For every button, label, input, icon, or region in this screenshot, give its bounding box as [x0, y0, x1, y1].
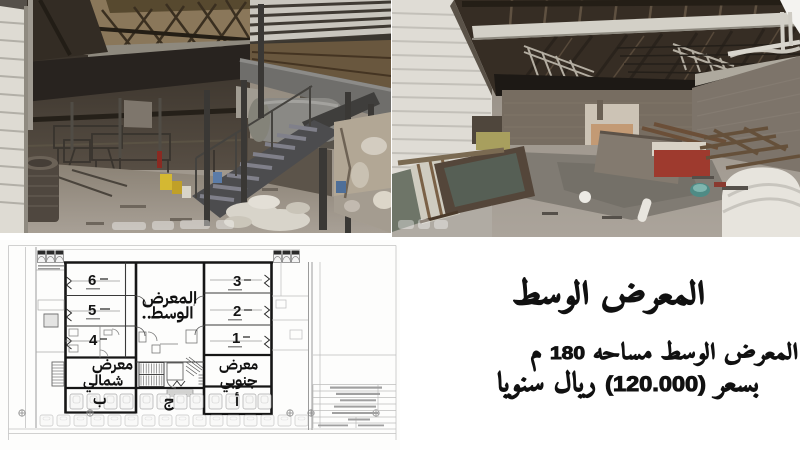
svg-text:3: 3 — [233, 273, 241, 290]
svg-text:6: 6 — [88, 272, 96, 289]
svg-text:2: 2 — [233, 303, 241, 320]
svg-text:1: 1 — [232, 330, 240, 347]
svg-text:4: 4 — [89, 332, 98, 349]
svg-text:5: 5 — [88, 302, 96, 319]
